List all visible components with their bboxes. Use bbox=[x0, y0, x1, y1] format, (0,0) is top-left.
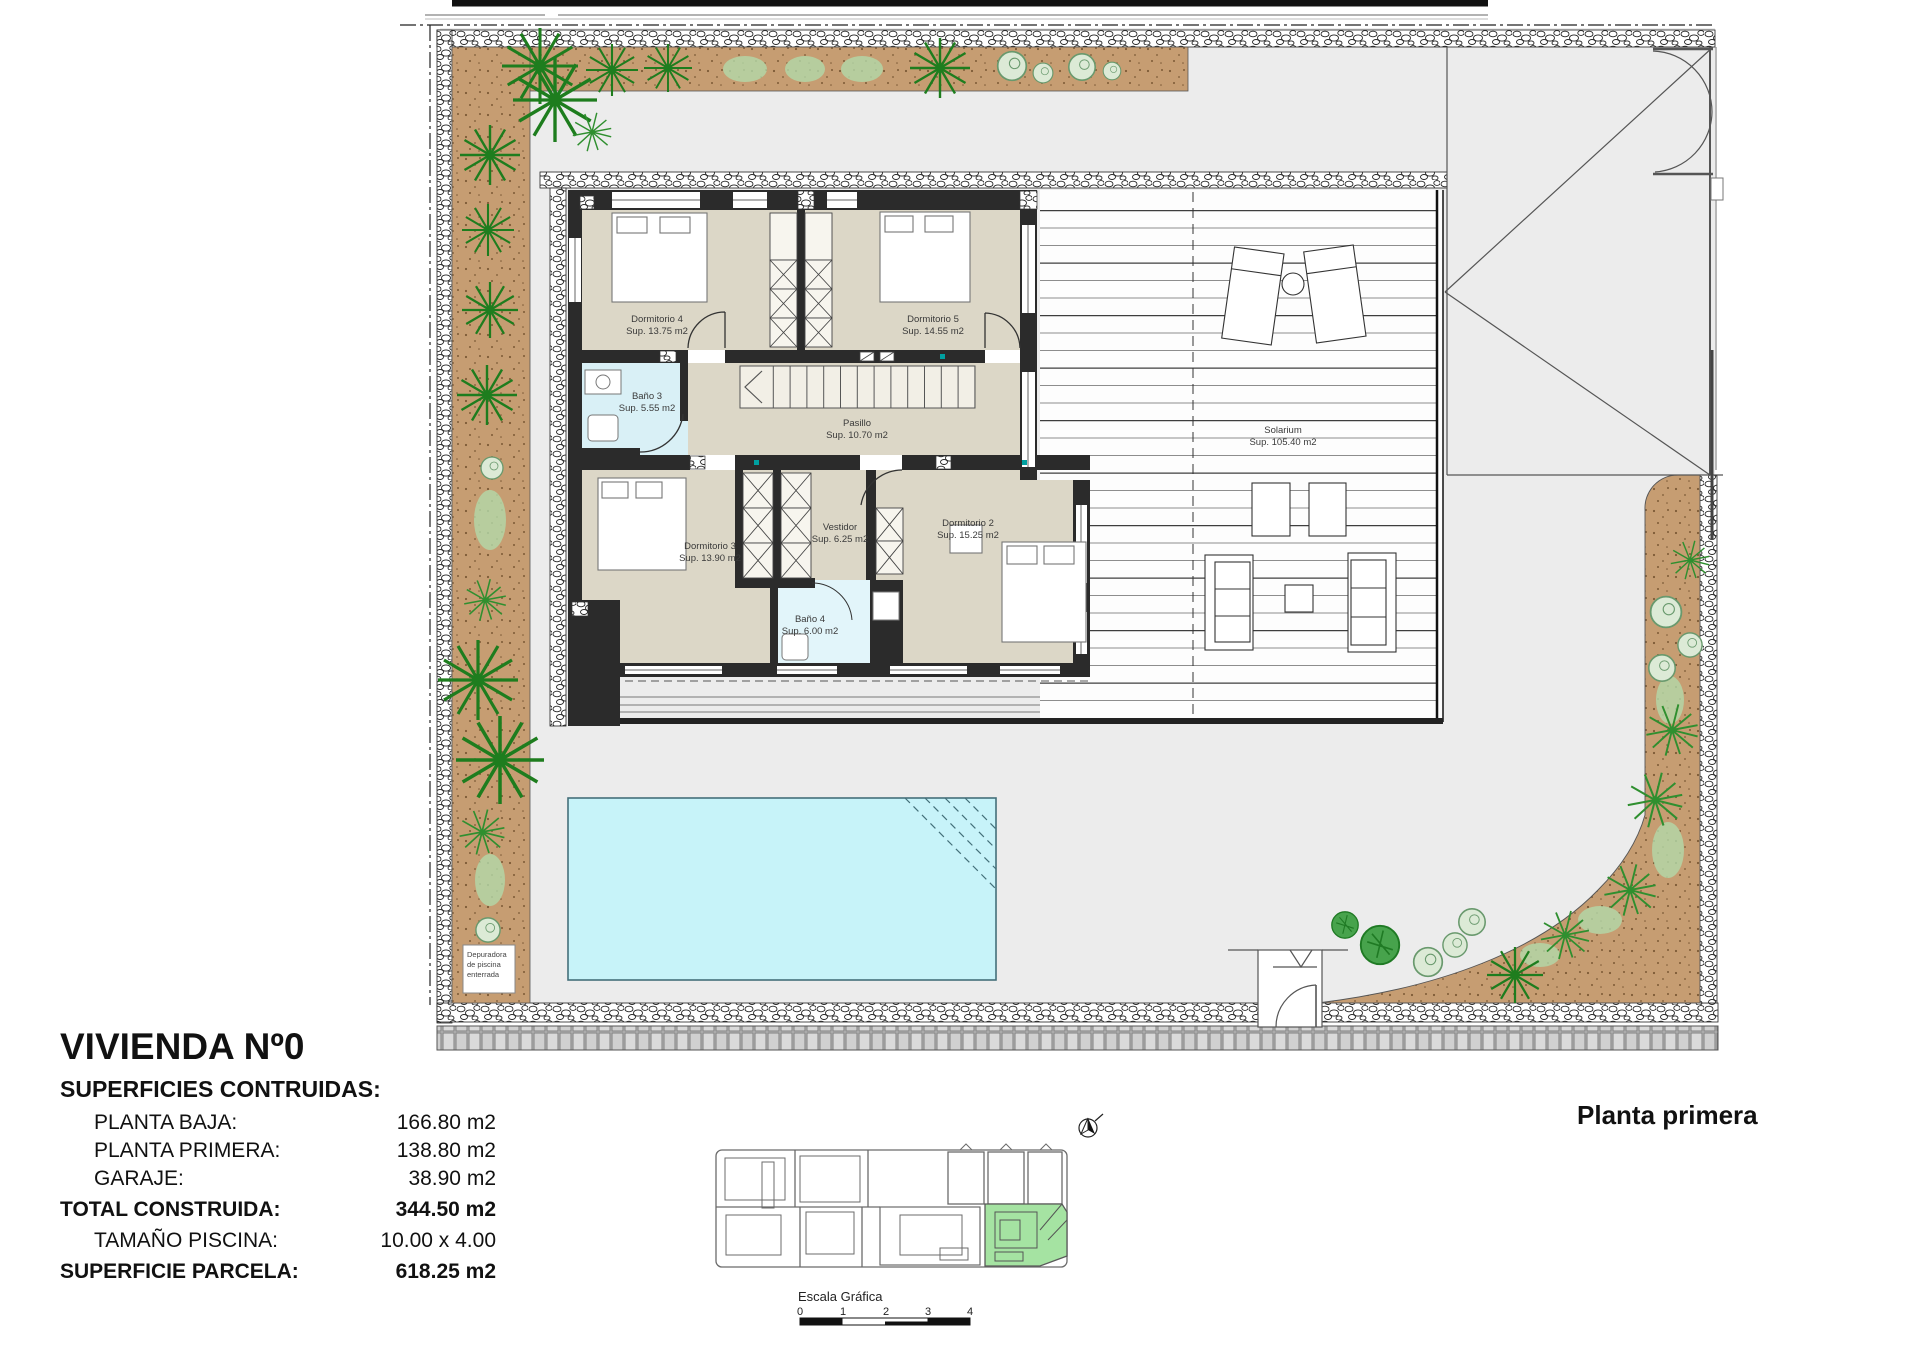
table-row: SUPERFICIE PARCELA: 618.25 m2 bbox=[60, 1260, 496, 1288]
room-area: Sup. 6.25 m2 bbox=[812, 534, 869, 545]
row-value: 618.25 m2 bbox=[396, 1260, 496, 1284]
toilet-icon bbox=[782, 634, 808, 660]
room-name: Baño 4 bbox=[795, 614, 825, 625]
table-row: PLANTA BAJA: 166.80 m2 bbox=[60, 1111, 496, 1139]
shrub-icon bbox=[1332, 912, 1358, 938]
scale-title: Escala Gráfica bbox=[798, 1289, 883, 1304]
room-area: Sup. 13.90 m2 bbox=[679, 553, 741, 564]
room-area: Sup. 15.25 m2 bbox=[937, 530, 999, 541]
north-arrow-icon bbox=[1079, 1114, 1103, 1137]
room-area: Sup. 14.55 m2 bbox=[902, 326, 964, 337]
table-row: TAMAÑO PISCINA: 10.00 x 4.00 bbox=[60, 1229, 496, 1257]
bush-icon bbox=[1033, 63, 1053, 83]
pool-note: Depuradora de piscina enterrada bbox=[463, 945, 515, 993]
scale-tick: 2 bbox=[883, 1306, 889, 1318]
row-value: 344.50 m2 bbox=[396, 1198, 496, 1222]
bush-icon bbox=[998, 52, 1027, 81]
bush-icon bbox=[1443, 933, 1467, 957]
site-key-plan bbox=[716, 1144, 1067, 1267]
sink-icon bbox=[585, 370, 621, 394]
bush-icon bbox=[1459, 909, 1485, 935]
pool bbox=[568, 798, 996, 980]
scale-bar: Escala Gráfica 0 1 2 3 4 bbox=[797, 1289, 973, 1325]
floor-level-label: Planta primera bbox=[1577, 1100, 1758, 1131]
surfaces-heading: SUPERFICIES CONTRUIDAS: bbox=[60, 1076, 496, 1103]
bush-icon bbox=[1103, 62, 1121, 80]
row-label: PLANTA BAJA: bbox=[60, 1111, 237, 1135]
staircase bbox=[740, 366, 975, 408]
scale-tick: 4 bbox=[967, 1306, 973, 1318]
room-area: Sup. 13.75 m2 bbox=[626, 326, 688, 337]
house bbox=[568, 190, 1090, 726]
toilet-icon bbox=[588, 415, 618, 441]
side-table-icon bbox=[1282, 273, 1304, 295]
row-label: SUPERFICIE PARCELA: bbox=[60, 1260, 299, 1284]
pool-note-line1: Depuradora bbox=[467, 950, 507, 959]
sidewalk-paving bbox=[437, 1026, 1718, 1050]
pool-note-line3: enterrada bbox=[467, 970, 500, 979]
room-area: Sup. 10.70 m2 bbox=[826, 430, 888, 441]
room-name: Dormitorio 3 bbox=[684, 541, 736, 552]
scale-tick: 1 bbox=[840, 1306, 846, 1318]
table-row: GARAJE: 38.90 m2 bbox=[60, 1167, 496, 1195]
sink-icon bbox=[873, 592, 899, 620]
bush-icon bbox=[481, 457, 503, 479]
room-name: Pasillo bbox=[843, 418, 871, 429]
pool-note-line2: de piscina bbox=[467, 960, 502, 969]
bush-icon bbox=[476, 918, 500, 942]
room-name: Dormitorio 4 bbox=[631, 314, 683, 325]
row-value: 138.80 m2 bbox=[397, 1139, 496, 1163]
bush-icon bbox=[1414, 948, 1443, 977]
drawing-title: VIVIENDA Nº0 bbox=[60, 1026, 496, 1068]
scale-tick: 0 bbox=[797, 1306, 803, 1318]
north-wall-bar bbox=[452, 0, 1488, 7]
row-value: 10.00 x 4.00 bbox=[380, 1229, 496, 1253]
shrub-icon bbox=[1361, 926, 1399, 964]
table-row: TOTAL CONSTRUIDA: 344.50 m2 bbox=[60, 1198, 496, 1226]
room-name: Dormitorio 5 bbox=[907, 314, 959, 325]
room-area: Sup. 5.55 m2 bbox=[619, 403, 676, 414]
table-row: PLANTA PRIMERA: 138.80 m2 bbox=[60, 1139, 496, 1167]
row-label: GARAJE: bbox=[60, 1167, 184, 1191]
surfaces-table: PLANTA BAJA: 166.80 m2 PLANTA PRIMERA: 1… bbox=[60, 1111, 496, 1288]
room-area: Sup. 105.40 m2 bbox=[1249, 437, 1316, 448]
coffee-table-icon bbox=[1285, 585, 1313, 612]
room-area: Sup. 6.00 m2 bbox=[782, 626, 839, 637]
row-label: PLANTA PRIMERA: bbox=[60, 1139, 280, 1163]
title-block: VIVIENDA Nº0 SUPERFICIES CONTRUIDAS: PLA… bbox=[60, 1026, 496, 1288]
room-name: Baño 3 bbox=[632, 391, 662, 402]
room-name: Solarium bbox=[1264, 425, 1302, 436]
row-value: 38.90 m2 bbox=[408, 1167, 496, 1191]
scale-tick: 3 bbox=[925, 1306, 931, 1318]
bush-icon bbox=[1069, 54, 1095, 80]
bush-icon bbox=[1649, 655, 1675, 681]
floor-plan-sheet: Depuradora de piscina enterrada Dormitor… bbox=[0, 0, 1920, 1357]
room-name: Vestidor bbox=[823, 522, 857, 533]
bush-icon bbox=[1678, 633, 1702, 657]
room-name: Dormitorio 2 bbox=[942, 518, 994, 529]
row-label: TAMAÑO PISCINA: bbox=[60, 1229, 278, 1253]
row-label: TOTAL CONSTRUIDA: bbox=[60, 1198, 281, 1222]
row-value: 166.80 m2 bbox=[397, 1111, 496, 1135]
bush-icon bbox=[1651, 597, 1682, 628]
